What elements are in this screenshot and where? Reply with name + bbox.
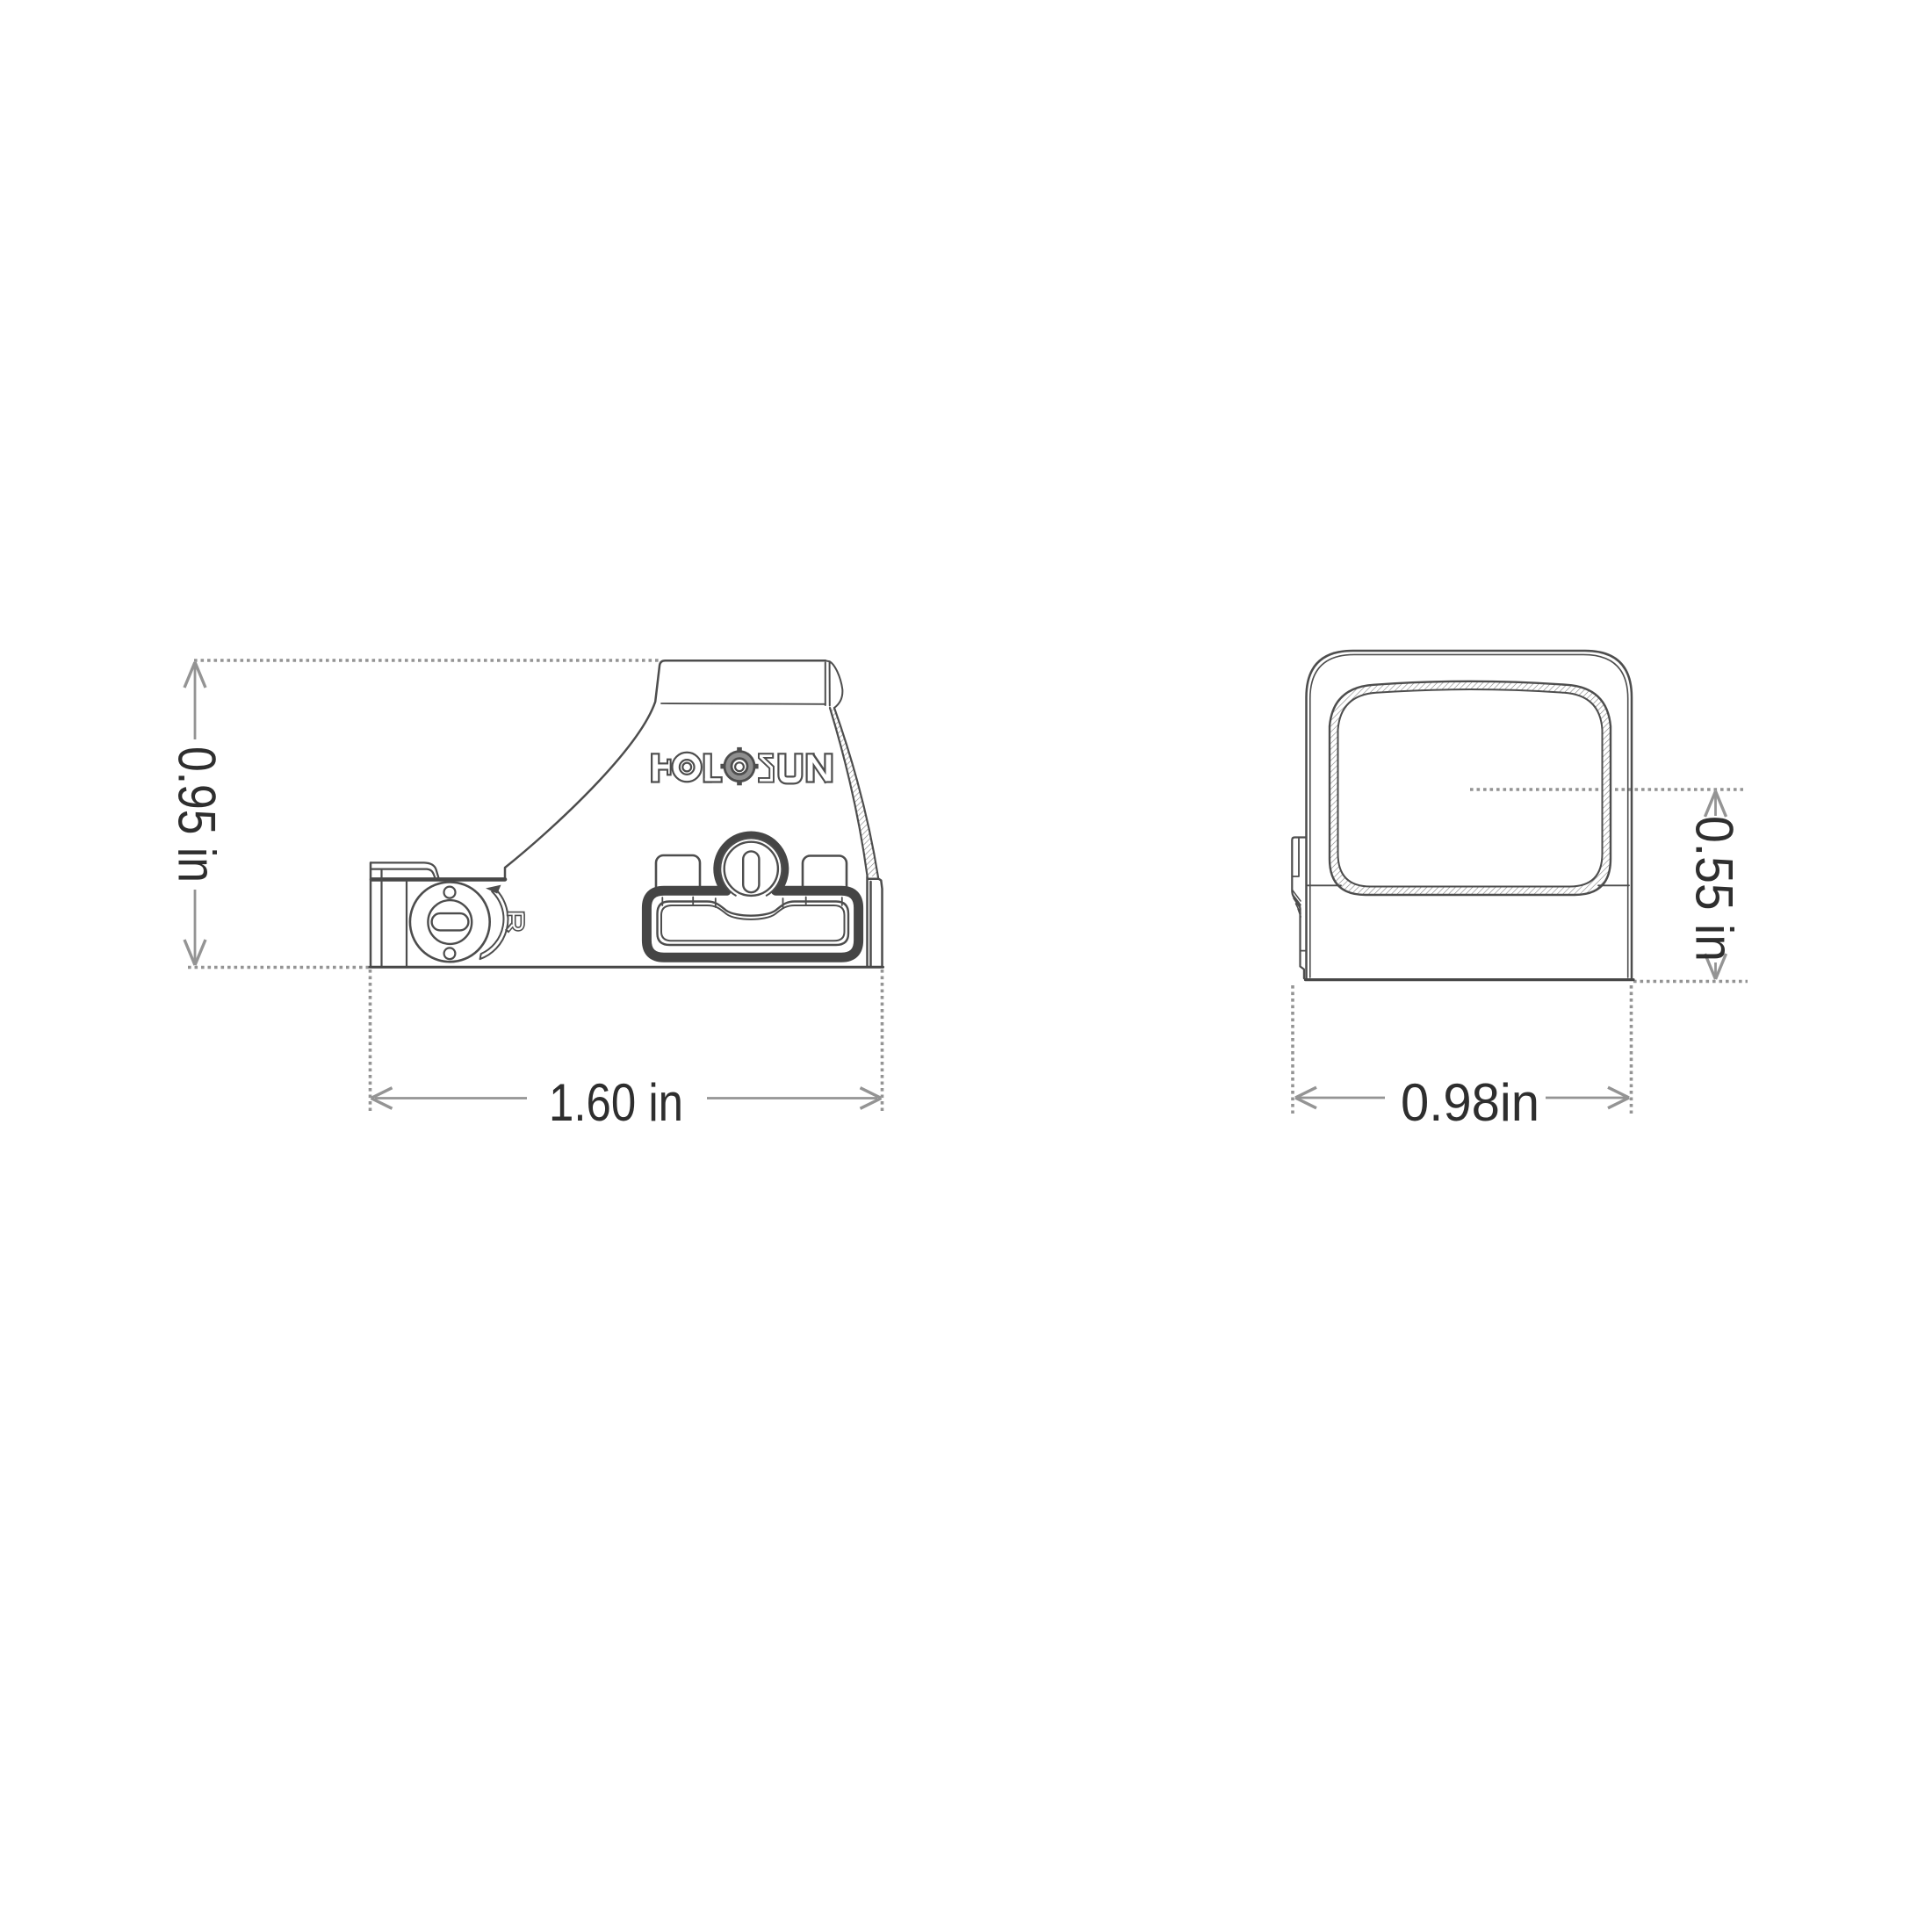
svg-text:0.95 in: 0.95 in <box>168 746 227 883</box>
svg-text:0.98in: 0.98in <box>1401 1073 1539 1132</box>
svg-text:0.55 in: 0.55 in <box>1685 816 1744 962</box>
svg-text:1.60 in: 1.60 in <box>549 1073 683 1132</box>
